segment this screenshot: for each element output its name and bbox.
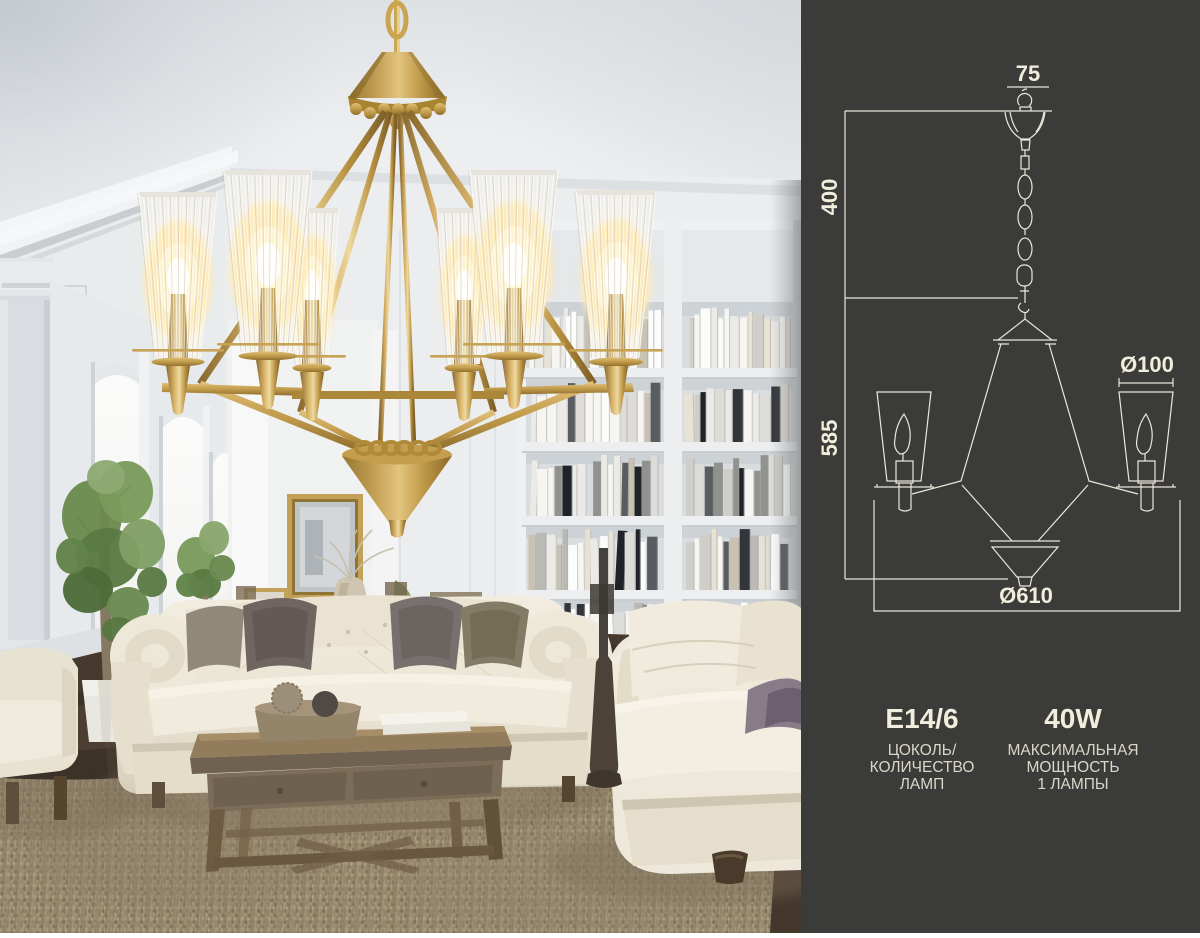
svg-text:Ø610: Ø610 — [999, 583, 1053, 608]
svg-text:400: 400 — [817, 179, 842, 216]
svg-text:КОЛИЧЕСТВО: КОЛИЧЕСТВО — [870, 759, 975, 776]
svg-text:ЛАМП: ЛАМП — [900, 776, 945, 793]
svg-text:Ø100: Ø100 — [1120, 352, 1174, 377]
svg-text:75: 75 — [1016, 61, 1040, 86]
svg-text:ЦОКОЛЬ/: ЦОКОЛЬ/ — [888, 742, 957, 759]
svg-text:E14/6: E14/6 — [885, 703, 958, 734]
svg-text:40W: 40W — [1044, 703, 1102, 734]
svg-text:МАКСИМАЛЬНАЯ: МАКСИМАЛЬНАЯ — [1007, 742, 1138, 759]
svg-text:1 ЛАМПЫ: 1 ЛАМПЫ — [1037, 776, 1108, 793]
svg-text:МОЩНОСТЬ: МОЩНОСТЬ — [1026, 759, 1119, 776]
svg-text:585: 585 — [817, 420, 842, 457]
